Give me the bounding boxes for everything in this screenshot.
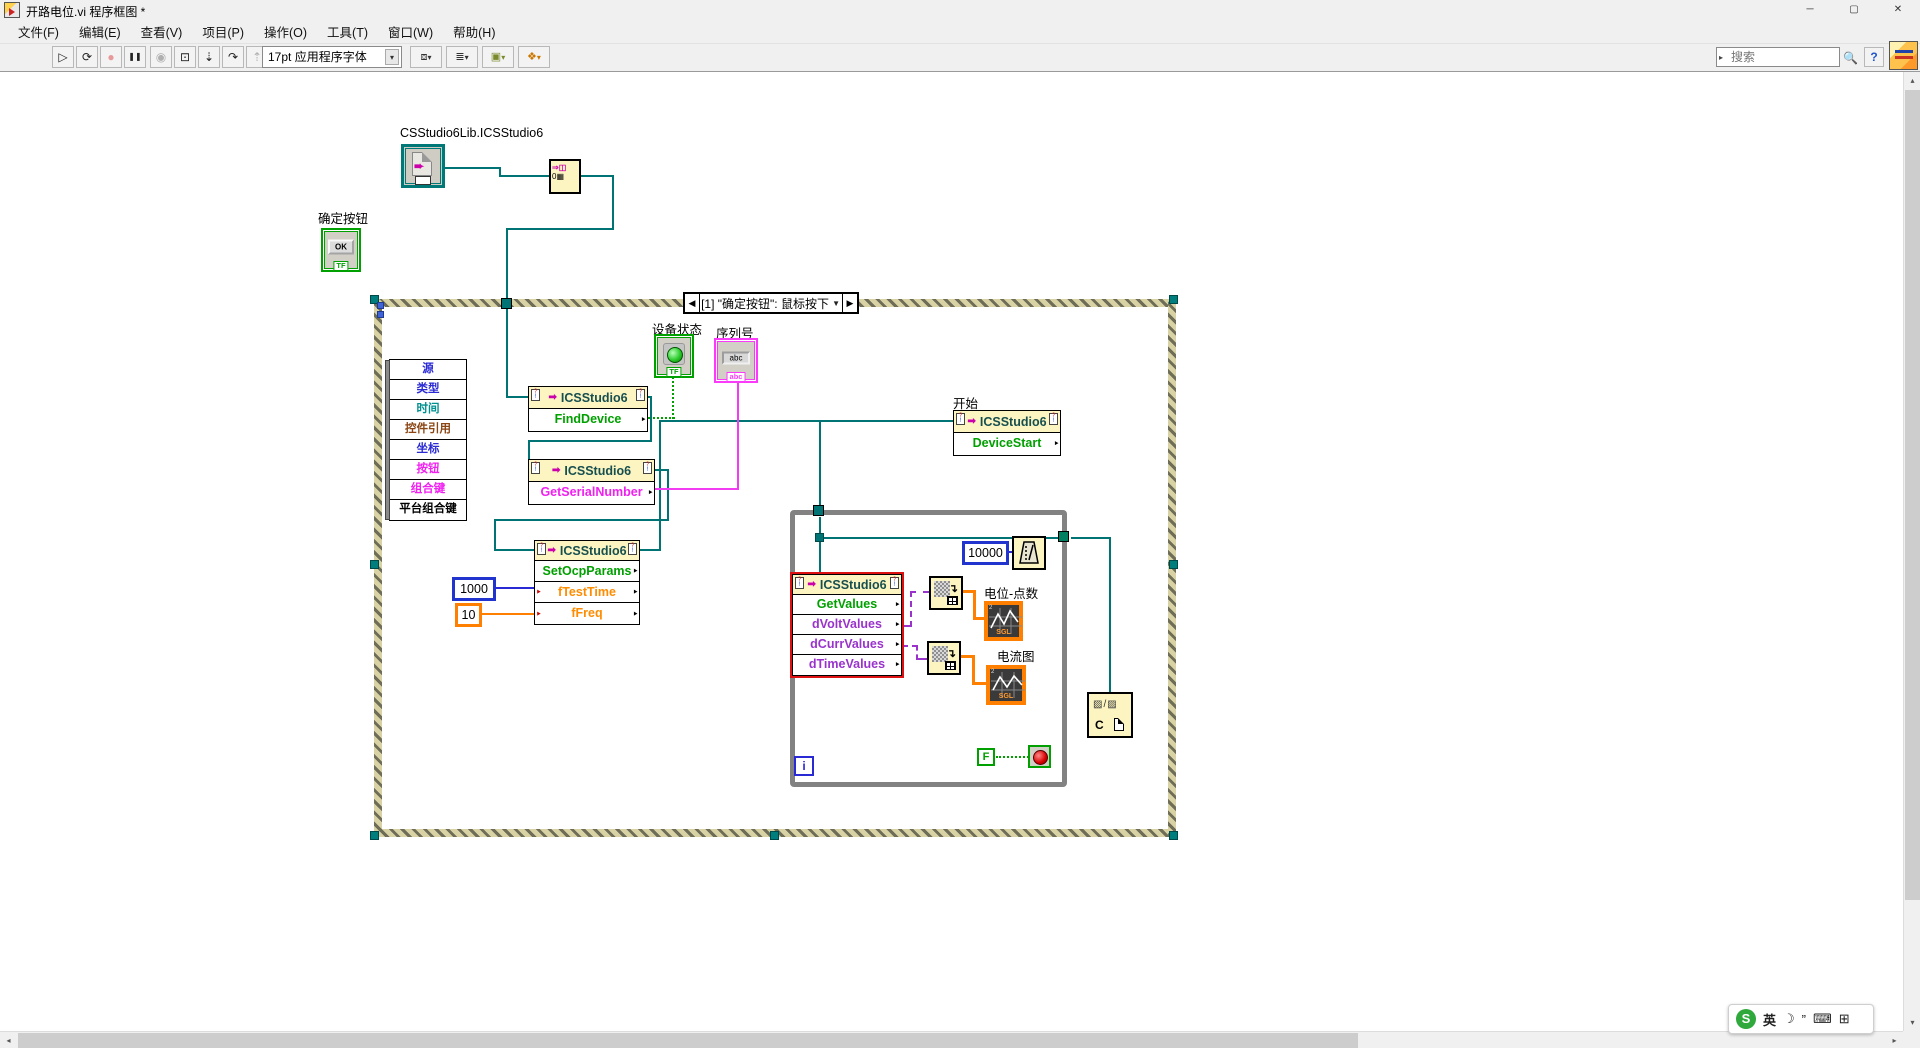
class-tab-icon <box>415 176 431 185</box>
sgl-type-badge: SGL <box>996 629 1010 637</box>
selection-handle[interactable] <box>1169 295 1178 304</box>
abort-button[interactable]: ● <box>100 46 122 68</box>
app-icon <box>4 2 20 18</box>
refnum-icon: ?! <box>531 462 540 474</box>
refnum-icon: ?! <box>956 413 965 425</box>
search-icon[interactable]: 🔍 <box>1843 49 1858 67</box>
led-icon <box>663 343 685 365</box>
event-data-coords[interactable]: 坐标 <box>390 440 466 460</box>
wire-class-ref <box>494 519 496 551</box>
resize-objects-button[interactable]: ▣▾ <box>482 46 514 68</box>
chevron-down-icon: ▾ <box>501 53 505 62</box>
invoke-arrow-icon: ➡ <box>967 416 975 427</box>
pause-button[interactable]: ❚❚ <box>124 46 146 68</box>
horizontal-scroll-thumb[interactable] <box>18 1033 1358 1048</box>
highlight-execution-button[interactable]: ◉ <box>150 46 172 68</box>
invoke-arrow-icon: ➡ <box>807 579 815 590</box>
invoke-class-title: ICSStudio6 <box>820 578 887 592</box>
wire-class-ref <box>640 549 661 551</box>
maximize-button[interactable]: ▢ <box>1832 0 1876 20</box>
serial-number-terminal[interactable]: abc abc <box>714 338 758 383</box>
tunnel-class-ref[interactable] <box>501 298 512 309</box>
ime-punctuation-icon[interactable]: ” <box>1802 1012 1806 1027</box>
scrollbar-corner <box>1903 1031 1920 1048</box>
ok-button-face: OK <box>328 240 354 255</box>
refnum-icon: ?! <box>890 577 899 589</box>
invoke-arrow-icon: ➡ <box>552 465 560 476</box>
vertical-scrollbar[interactable]: ▴ ▾ <box>1903 72 1920 1031</box>
param-ffreq[interactable]: fFreq <box>535 603 639 624</box>
cluster-icon <box>945 661 956 670</box>
invoke-class-title: ICSStudio6 <box>980 415 1047 429</box>
chevron-down-icon[interactable]: ▾ <box>385 49 399 65</box>
event-data-mods[interactable]: 组合键 <box>390 480 466 500</box>
menu-edit[interactable]: 编辑(E) <box>69 19 131 44</box>
output-dvoltvalues[interactable]: dVoltValues <box>793 615 901 635</box>
ime-language-toggle[interactable]: 英 <box>1763 1010 1776 1029</box>
array-icon <box>934 581 950 597</box>
event-data-node-rail <box>385 360 390 520</box>
wire-class-ref <box>650 396 652 442</box>
close-node-glyphs: ▨/▨ <box>1093 699 1118 710</box>
wait-ms-node[interactable] <box>1012 536 1046 570</box>
sogou-logo-icon[interactable]: S <box>1736 1009 1756 1029</box>
false-constant[interactable]: F <box>977 748 995 766</box>
step-into-button[interactable]: ⇣ <box>198 46 220 68</box>
curr-chart-terminal[interactable]: 2 SGL <box>986 665 1026 705</box>
constant-freq[interactable]: 10 <box>455 603 482 627</box>
event-data-platmods[interactable]: 平台组合键 <box>390 500 466 520</box>
event-case-label[interactable]: [1] "确定按钮": 鼠标按下 <box>700 295 830 312</box>
previous-case-icon[interactable]: ◀ <box>685 294 700 312</box>
boolean-type-tab: TF <box>666 367 681 377</box>
page-icon <box>1114 718 1124 731</box>
class-constant-label[interactable]: CSStudio6Lib.ICSStudio6 <box>400 126 543 140</box>
scroll-up-icon[interactable]: ▴ <box>1904 72 1920 89</box>
vi-icon[interactable] <box>1889 41 1918 70</box>
close-reference-node[interactable]: ▨/▨ C <box>1087 692 1133 738</box>
selection-handle[interactable] <box>770 831 779 840</box>
ime-fullhalf-icon[interactable]: ☽ <box>1783 1011 1795 1027</box>
wire-class-ref <box>659 420 953 422</box>
menu-bar: 文件(F) 编辑(E) 查看(V) 项目(P) 操作(O) 工具(T) 窗口(W… <box>0 20 1920 44</box>
search-box[interactable]: ▸ <box>1716 47 1840 67</box>
search-input[interactable] <box>1717 48 1817 66</box>
invoke-arrow-icon: ➡ <box>548 392 556 403</box>
chevron-down-icon: ▾ <box>427 53 431 62</box>
chevron-down-icon: ▾ <box>465 53 469 62</box>
ok-button-label[interactable]: 确定按钮 <box>318 208 368 227</box>
wire-class-ref <box>612 175 614 230</box>
selection-handle[interactable] <box>370 831 379 840</box>
wire-class-ref <box>443 167 501 169</box>
curr-chart-label[interactable]: 电流图 <box>997 646 1035 665</box>
param-ftesttime[interactable]: fTestTime <box>535 582 639 603</box>
method-device-start[interactable]: DeviceStart <box>954 433 1060 455</box>
window-title: 开路电位.vi 程序框图 * <box>26 3 145 20</box>
close-button[interactable]: ✕ <box>1876 0 1920 20</box>
array-to-cluster-node[interactable]: ↴ <box>929 576 963 610</box>
menu-help[interactable]: 帮助(H) <box>443 19 505 44</box>
wire-int-testtime <box>496 587 534 589</box>
tunnel-loop-out[interactable] <box>1058 531 1069 542</box>
wire-class-ref <box>1071 537 1111 539</box>
event-data-source[interactable]: 源 <box>390 360 466 380</box>
structure-corner-marker <box>377 311 384 318</box>
refnum-icon: ?! <box>1049 413 1058 425</box>
wire-class-ref <box>499 175 549 177</box>
scroll-right-icon[interactable]: ▸ <box>1886 1032 1903 1048</box>
invoke-class-title: ICSStudio6 <box>564 464 631 478</box>
output-dtimevalues[interactable]: dTimeValues <box>793 655 901 675</box>
run-button[interactable]: ▷ <box>52 46 74 68</box>
menu-view[interactable]: 查看(V) <box>131 19 193 44</box>
reorder-button[interactable]: ❖▾ <box>518 46 550 68</box>
refnum-icon: ?! <box>636 389 645 401</box>
align-objects-button[interactable]: ⧈▾ <box>410 46 442 68</box>
refnum-icon: ?! <box>643 462 652 474</box>
next-case-icon[interactable]: ▶ <box>842 294 857 312</box>
distribute-objects-button[interactable]: ≣▾ <box>446 46 478 68</box>
wire-class-ref <box>506 228 614 230</box>
string-field: abc <box>722 351 750 364</box>
selection-handle[interactable] <box>1169 831 1178 840</box>
structure-corner-marker <box>377 302 384 309</box>
cluster-icon <box>947 596 958 605</box>
retain-wire-values-button[interactable]: ⊡ <box>174 46 196 68</box>
search-caret-icon: ▸ <box>1719 53 1723 62</box>
refnum-icon: ?! <box>628 543 637 555</box>
constructor-glyph-bottom: 0▦ <box>552 172 578 181</box>
method-get-values[interactable]: GetValues <box>793 595 901 615</box>
event-data-button[interactable]: 按钮 <box>390 460 466 480</box>
event-data-ctlref[interactable]: 控件引用 <box>390 420 466 440</box>
wire-float-freq <box>481 613 534 615</box>
wire-class-ref <box>506 396 528 398</box>
invoke-node-get-values[interactable]: ?! ➡ ICSStudio6 ?! GetValues dVoltValues… <box>792 574 902 676</box>
constructor-glyph-top: ⇒◫ <box>552 163 566 172</box>
refnum-icon: ?! <box>531 389 540 401</box>
horizontal-scrollbar[interactable]: ◂ ▸ <box>0 1031 1903 1048</box>
font-selector-value: 17pt 应用程序字体 <box>268 50 367 64</box>
menu-tools[interactable]: 工具(T) <box>317 19 378 44</box>
chevron-down-icon[interactable]: ▼ <box>830 299 842 308</box>
toolbar: ▷ ⟳ ● ❚❚ ◉ ⊡ ⇣ ↷ ⇡ 17pt 应用程序字体 ▾ ⧈▾ ≣▾ ▣… <box>0 44 1920 72</box>
wire-junction <box>815 533 824 542</box>
wire-class-ref <box>506 228 508 398</box>
wire-class-ref <box>667 469 669 521</box>
wire-class-ref <box>659 420 661 551</box>
boolean-type-tab: TF <box>333 261 348 271</box>
labview-window: 开路电位.vi 程序框图 * ─ ▢ ✕ 文件(F) 编辑(E) 查看(V) 项… <box>0 0 1920 1048</box>
wire-class-ref <box>494 549 534 551</box>
wire-class-ref <box>494 519 669 521</box>
constant-test-time[interactable]: 1000 <box>452 577 496 601</box>
title-bar: 开路电位.vi 程序框图 * ─ ▢ ✕ <box>0 0 1920 20</box>
wire-class-ref <box>581 175 614 177</box>
run-continuous-button[interactable]: ⟳ <box>76 46 98 68</box>
array-to-cluster-node[interactable]: ↴ <box>927 641 961 675</box>
ime-toolbox-icon[interactable]: ⊞ <box>1839 1011 1850 1027</box>
wire-string-serial <box>655 488 739 490</box>
scroll-left-icon[interactable]: ◂ <box>0 1032 17 1048</box>
wire-class-ref <box>1109 537 1111 693</box>
ok-button-terminal[interactable]: OK TF <box>321 228 361 272</box>
help-button[interactable]: ? <box>1864 47 1884 67</box>
font-selector[interactable]: 17pt 应用程序字体 ▾ <box>262 46 402 68</box>
selection-handle[interactable] <box>1169 560 1178 569</box>
invoke-arrow-icon: ➡ <box>547 545 555 556</box>
menu-project[interactable]: 项目(P) <box>192 19 254 44</box>
output-dcurrvalues[interactable]: dCurrValues <box>793 635 901 655</box>
class-constant[interactable]: ➨ <box>403 146 443 186</box>
method-set-ocp-params[interactable]: SetOcpParams <box>535 561 639 582</box>
invoke-node-get-serial-number[interactable]: ?! ➡ ICSStudio6 ?! GetSerialNumber <box>528 459 655 505</box>
menu-operate[interactable]: 操作(O) <box>254 19 317 44</box>
iteration-terminal[interactable]: i <box>794 756 814 776</box>
event-data-time[interactable]: 时间 <box>390 400 466 420</box>
menu-file[interactable]: 文件(F) <box>8 19 69 44</box>
event-data-type[interactable]: 类型 <box>390 380 466 400</box>
wire-string-serial <box>737 381 739 490</box>
loop-stop-terminal[interactable] <box>1028 745 1051 768</box>
wire-bool-devicefound <box>672 377 674 419</box>
tunnel-loop-in[interactable] <box>813 505 824 516</box>
ime-toolbar[interactable]: S 英 ☽ ” ⌨ ⊞ <box>1728 1004 1874 1034</box>
invoke-node-find-device[interactable]: ?! ➡ ICSStudio6 ?! FindDevice <box>528 386 648 432</box>
minimize-button[interactable]: ─ <box>1788 0 1832 20</box>
step-over-button[interactable]: ↷ <box>222 46 244 68</box>
refnum-icon: ?! <box>795 577 804 589</box>
selection-handle[interactable] <box>370 560 379 569</box>
curved-arrow-icon: ↴ <box>947 647 956 660</box>
wire-class-ref <box>819 420 821 515</box>
array-icon <box>932 646 948 662</box>
close-node-letter: C <box>1095 718 1104 732</box>
constructor-node[interactable]: ⇒◫ 0▦ <box>549 159 581 194</box>
device-status-terminal[interactable]: TF <box>654 334 694 378</box>
wire-class-ref <box>528 440 652 442</box>
method-get-serial-number[interactable]: GetSerialNumber <box>529 482 654 504</box>
invoke-class-title: ICSStudio6 <box>560 544 627 558</box>
vertical-scroll-thumb[interactable] <box>1905 90 1920 900</box>
class-arrow-icon: ➨ <box>414 159 424 173</box>
method-find-device[interactable]: FindDevice <box>529 409 647 431</box>
event-case-selector[interactable]: ◀ [1] "确定按钮": 鼠标按下 ▼ ▶ <box>683 292 859 314</box>
wire-bool-devicefound <box>648 417 675 419</box>
invoke-node-set-ocp-params[interactable]: ?! ➡ ICSStudio6 ?! SetOcpParams fTestTim… <box>534 540 640 625</box>
volt-chart-terminal[interactable]: 2 SGL <box>984 601 1023 641</box>
menu-window[interactable]: 窗口(W) <box>378 19 443 44</box>
refnum-icon: ?! <box>537 543 546 555</box>
curved-arrow-icon: ↴ <box>949 582 958 595</box>
constant-wait-ms[interactable]: 10000 <box>962 541 1009 565</box>
ime-keyboard-icon[interactable]: ⌨ <box>1813 1011 1832 1027</box>
volt-chart-label[interactable]: 电位-点数 <box>984 583 1038 602</box>
invoke-class-title: ICSStudio6 <box>561 391 628 405</box>
string-type-tab: abc <box>727 372 746 382</box>
sgl-type-badge: SGL <box>999 693 1013 701</box>
invoke-node-device-start[interactable]: ?! ➡ ICSStudio6 ?! DeviceStart <box>953 410 1061 456</box>
chevron-down-icon: ▾ <box>537 53 541 62</box>
scroll-down-icon[interactable]: ▾ <box>1904 1014 1920 1031</box>
event-data-node[interactable]: 源 类型 时间 控件引用 坐标 按钮 组合键 平台组合键 <box>389 359 467 521</box>
metronome-icon <box>1014 538 1044 568</box>
